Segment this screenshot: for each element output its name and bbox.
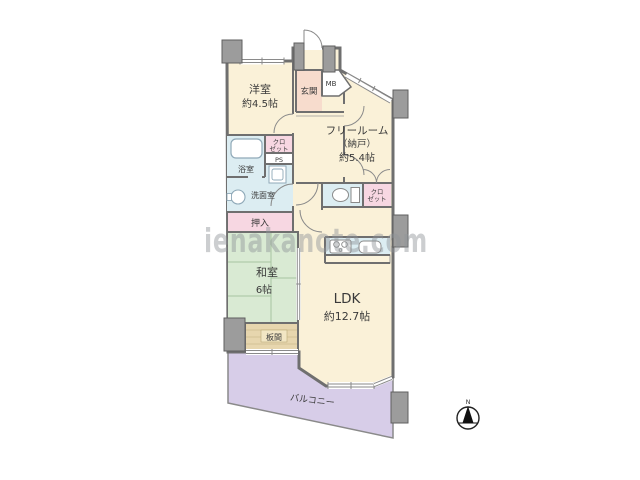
floorplan-drawing: 洋室 約4.5帖 玄関 MB フリールーム （納戸） 約5.4帖 クロ ゼット … [0,0,640,480]
label-bathroom: 浴室 [238,164,254,174]
pillar-bottom-right [391,392,408,423]
label-itanoma: 板間 [266,332,282,342]
label-ps: PS [275,156,283,164]
compass-icon: N [457,398,479,429]
label-freeroom-2: （納戸） [338,138,376,150]
pillar-entry-right [323,46,335,72]
compass-north-label: N [466,398,471,406]
bathtub-icon [231,139,262,158]
label-ldk: LDK [334,291,362,307]
label-washitsu: 和室 [256,265,278,279]
floorplan-page: 洋室 約4.5帖 玄関 MB フリールーム （納戸） 約5.4帖 クロ ゼット … [0,0,640,480]
label-closet-right-2: ゼット [368,194,387,203]
label-yoshitsu-size: 約4.5帖 [242,97,278,110]
label-closet-left-2: ゼット [270,144,289,153]
washbasin-tap-icon [227,194,232,201]
label-freeroom: フリールーム [326,125,389,137]
watermark-text: ienakanote.com [204,221,428,260]
label-yoshitsu: 洋室 [249,82,271,96]
label-freeroom-size: 約5.4帖 [339,151,375,164]
label-washroom: 洗面室 [251,190,275,200]
label-closet-left-1: クロ [273,138,286,146]
pillar-top-left [222,40,242,63]
washbasin-icon [231,190,245,204]
label-ldk-size: 約12.7帖 [324,309,371,323]
pillar-bottom-left [224,318,245,351]
entry-door-gap [304,44,322,50]
pillar-entry-left [294,43,304,70]
label-mb: MB [326,80,337,88]
label-closet-right-1: クロ [371,188,384,196]
label-washitsu-size: 6帖 [256,283,272,296]
label-genkan: 玄関 [300,86,317,97]
toilet-icon [333,188,360,203]
pillar-right-top [393,90,408,118]
